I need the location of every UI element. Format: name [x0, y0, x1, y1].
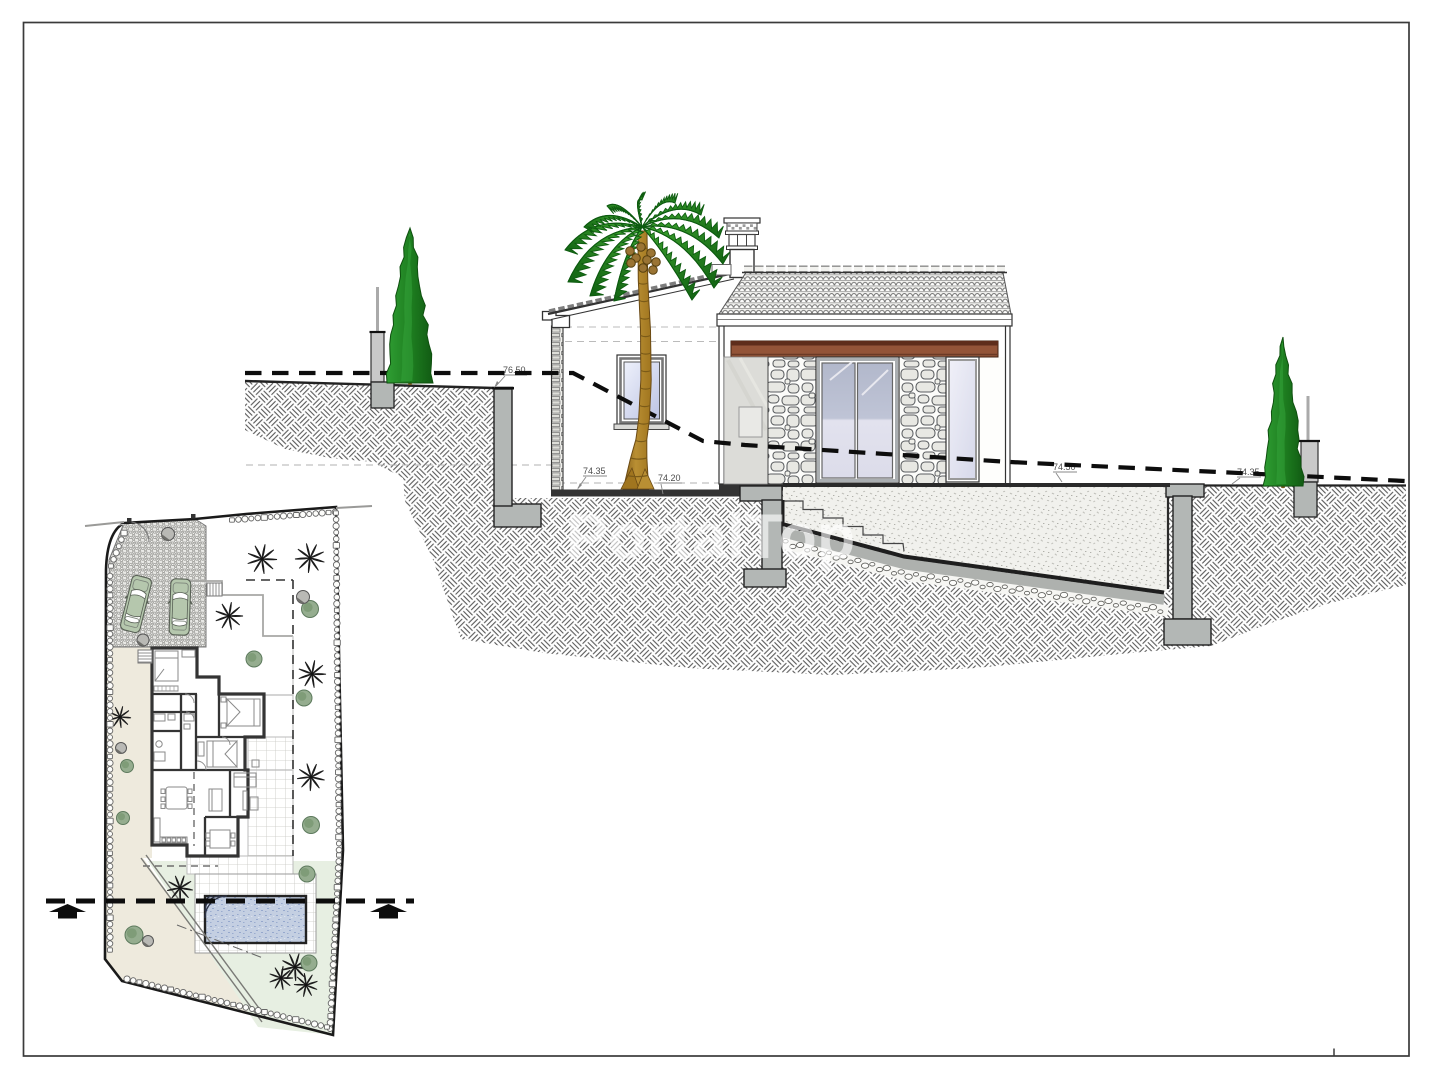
svg-text:PortalTop: PortalTop: [566, 502, 855, 572]
svg-text:74.20: 74.20: [658, 473, 681, 483]
svg-text:74.35: 74.35: [583, 466, 606, 476]
